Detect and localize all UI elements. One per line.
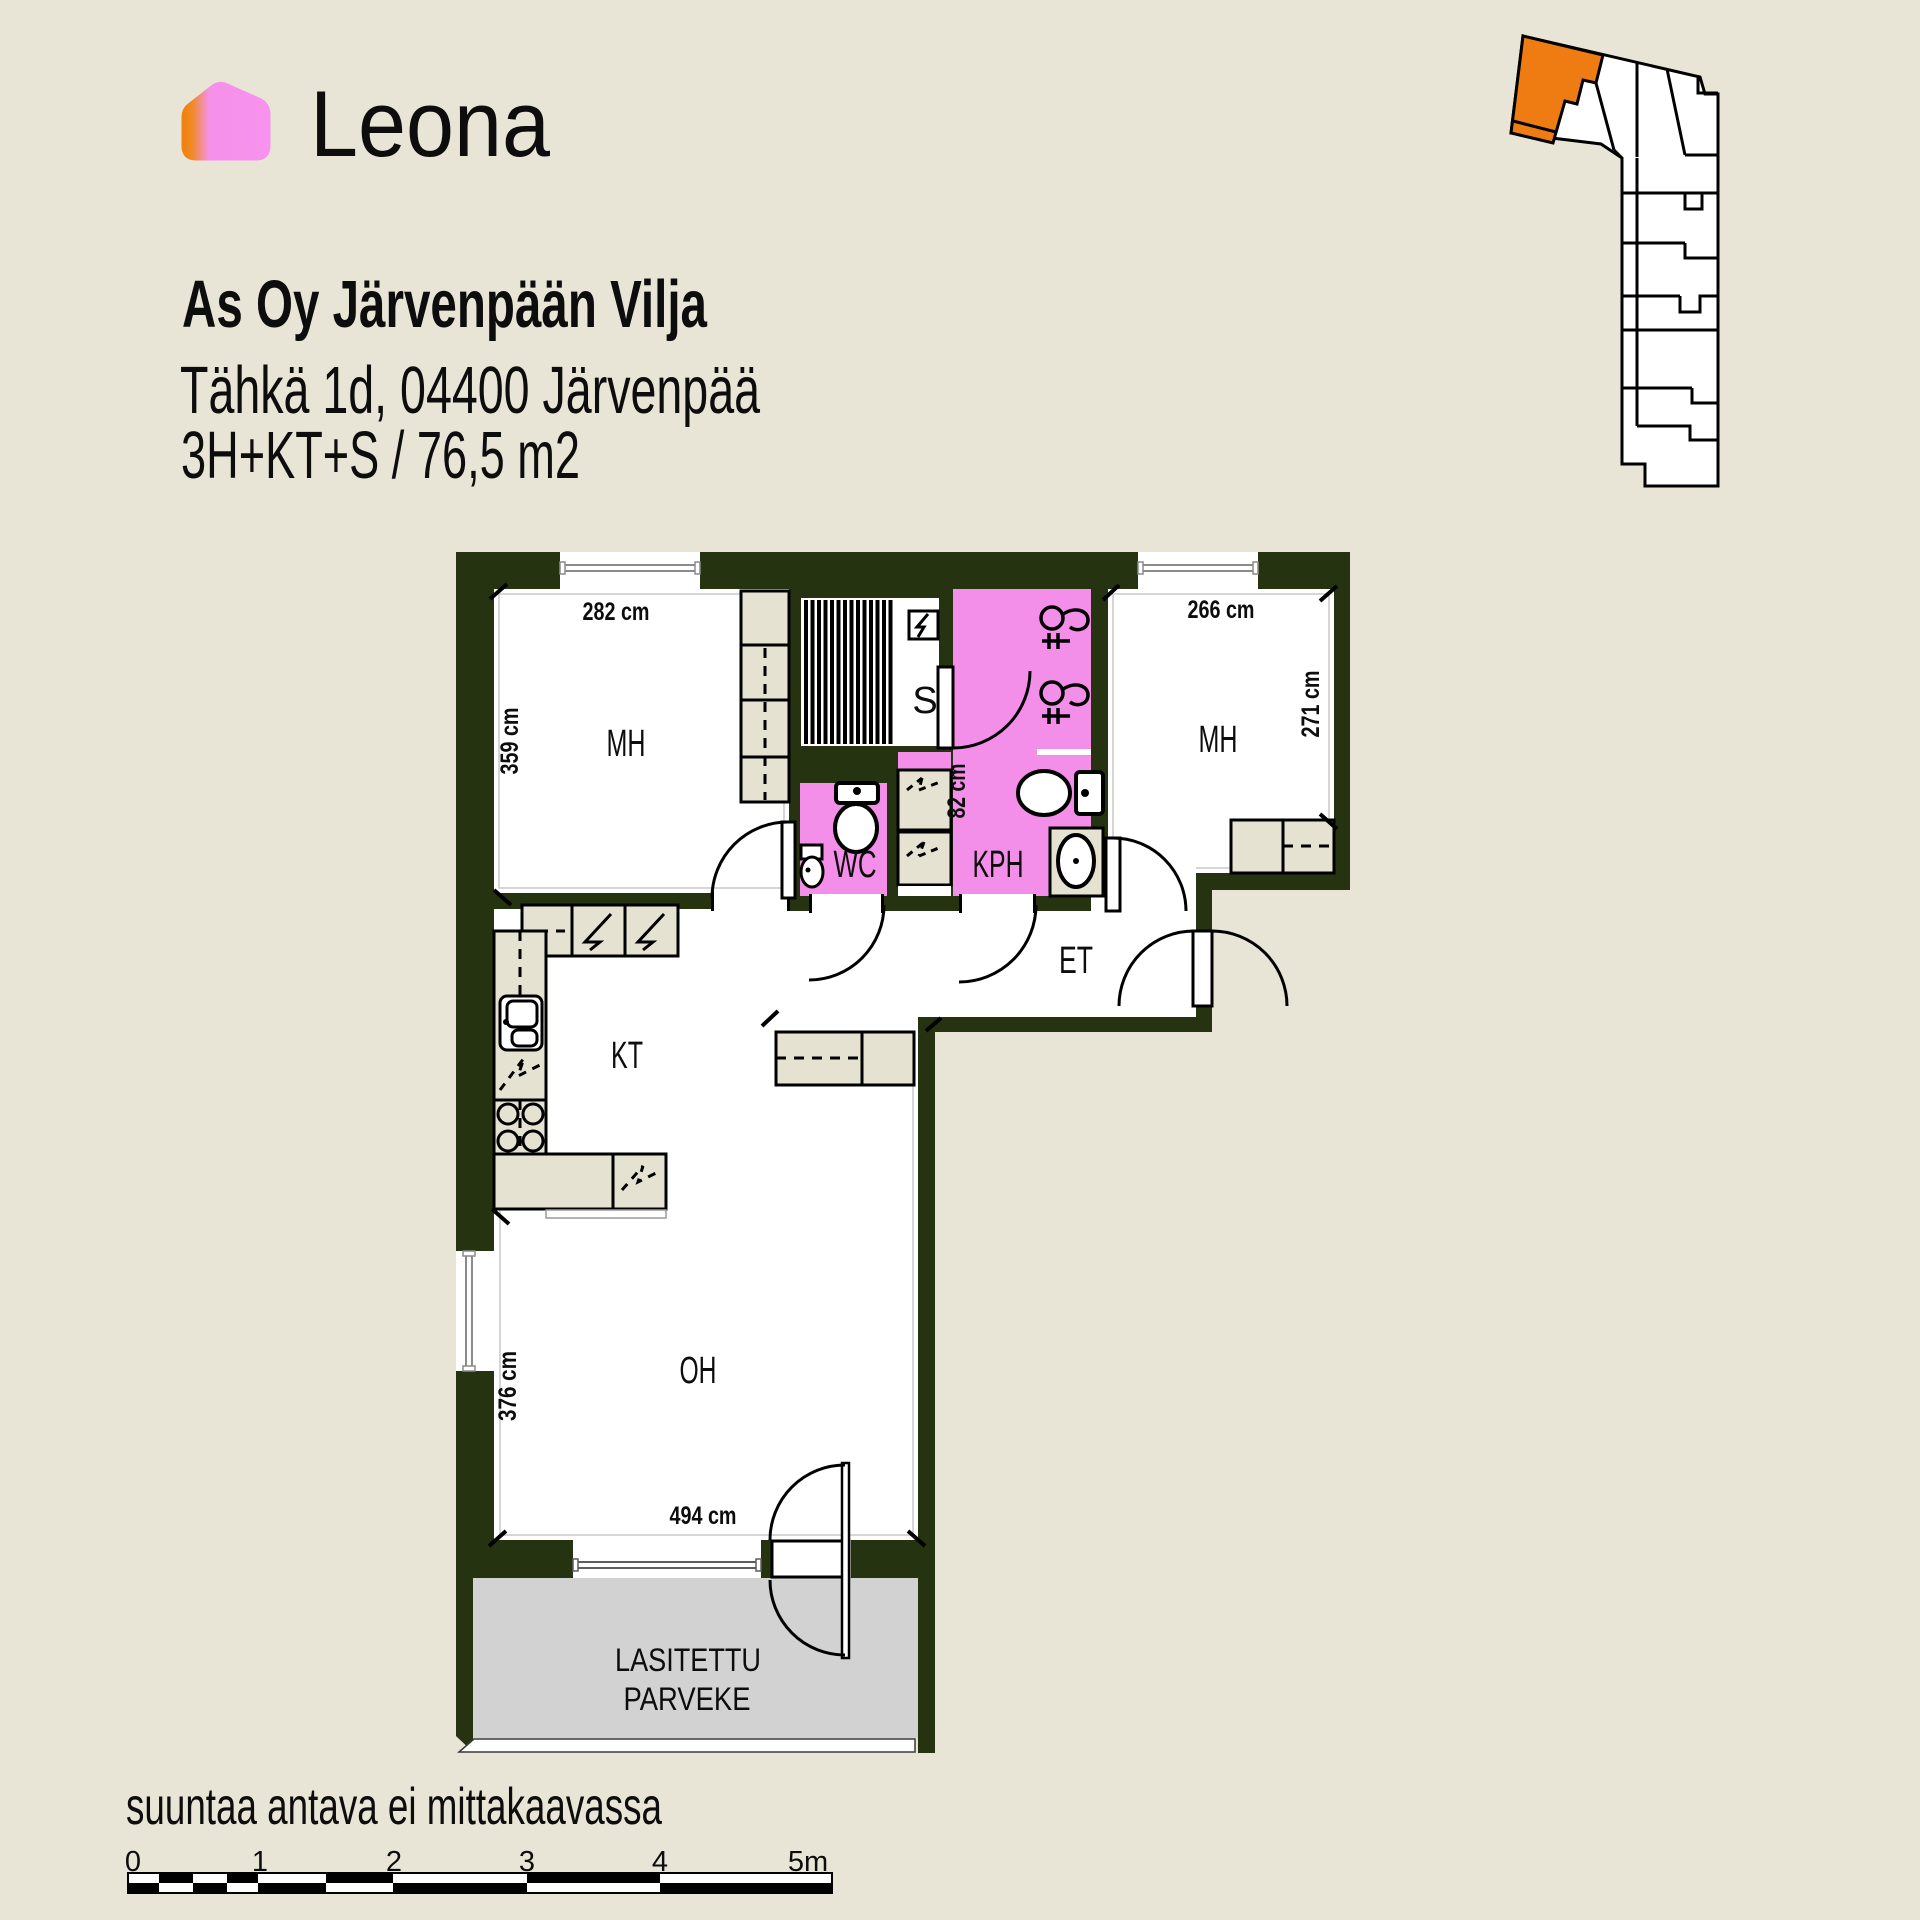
svg-text:OH: OH xyxy=(680,1350,717,1392)
svg-text:As Oy Järvenpään Vilja: As Oy Järvenpään Vilja xyxy=(182,267,708,342)
svg-text:LASITETTU: LASITETTU xyxy=(615,1642,761,1678)
svg-text:282 cm: 282 cm xyxy=(583,598,650,626)
svg-text:3H+KT+S / 76,5 m2: 3H+KT+S / 76,5 m2 xyxy=(181,418,580,493)
svg-text:KT: KT xyxy=(611,1035,643,1077)
svg-text:82 cm: 82 cm xyxy=(943,764,971,819)
svg-text:359 cm: 359 cm xyxy=(496,708,524,775)
svg-text:MH: MH xyxy=(1199,719,1238,761)
svg-text:S: S xyxy=(912,680,937,722)
svg-text:suuntaa antava ei mittakaavass: suuntaa antava ei mittakaavassa xyxy=(126,1778,662,1836)
svg-text:Tähkä 1d, 04400 Järvenpää: Tähkä 1d, 04400 Järvenpää xyxy=(180,353,761,428)
svg-text:ET: ET xyxy=(1059,940,1093,982)
svg-text:494 cm: 494 cm xyxy=(670,1502,737,1530)
svg-text:MH: MH xyxy=(607,723,646,765)
svg-text:PARVEKE: PARVEKE xyxy=(624,1681,751,1717)
svg-text:WC: WC xyxy=(834,844,877,886)
svg-text:266 cm: 266 cm xyxy=(1188,596,1255,624)
svg-text:376 cm: 376 cm xyxy=(494,1351,522,1421)
svg-text:271 cm: 271 cm xyxy=(1297,671,1325,738)
svg-text:Leona: Leona xyxy=(310,71,551,176)
svg-text:KPH: KPH xyxy=(973,844,1024,886)
